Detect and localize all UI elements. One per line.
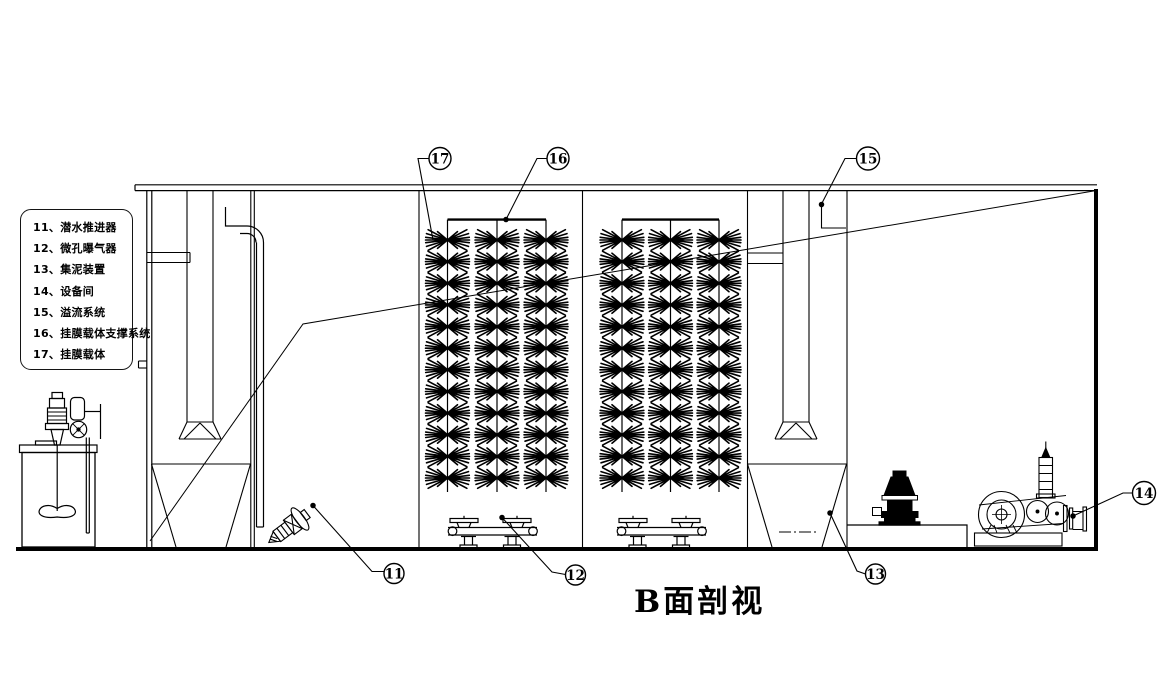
left-wall (147, 191, 152, 549)
callout-number: 17 (431, 151, 450, 167)
callout-number: 15 (859, 151, 878, 167)
dosing-drop-pipe (226, 207, 264, 527)
dosing-tank-mixer (20, 393, 101, 548)
roots-blower (975, 442, 1087, 547)
legend-item: 17、挂膜载体 (33, 344, 132, 365)
callout-13: 13 (866, 564, 886, 584)
callout-12: 12 (566, 565, 586, 585)
view-title: B面剖视 (634, 576, 765, 621)
equipment-plinth (847, 525, 967, 549)
legend-item: 16、挂膜载体支撑系统 (33, 323, 132, 344)
legend-item: 12、微孔曝气器 (33, 238, 132, 259)
drawing-sheet: 17 16 15 11 12 13 14 11、潜水推进器 12、微孔曝气器 1… (0, 0, 1175, 699)
callout-number: 12 (566, 568, 585, 584)
inlet-pipe-right (748, 253, 784, 264)
downcomer-duct-left (179, 191, 221, 439)
legend-item: 11、潜水推进器 (33, 217, 132, 238)
aerator-unit-1 (448, 516, 537, 548)
legend-item: 13、集泥装置 (33, 259, 132, 280)
callout-14: 14 (1133, 482, 1156, 505)
downcomer-duct-right (775, 191, 817, 439)
callout-17: 17 (429, 148, 451, 170)
callout-15: 15 (857, 147, 880, 170)
biofilm-carrier-brushes (426, 230, 742, 489)
sludge-pump (873, 471, 921, 525)
sludge-hopper (748, 464, 847, 547)
aerator-unit-2 (617, 516, 706, 548)
inlet-pipe-left (147, 253, 190, 263)
top-rail (135, 185, 1097, 191)
callout-11: 11 (384, 564, 404, 584)
legend-box: 11、潜水推进器 12、微孔曝气器 13、集泥装置 14、设备间 15、溢流系统… (20, 209, 133, 370)
legend-item: 15、溢流系统 (33, 302, 132, 323)
wall-stub-pipe (139, 361, 147, 368)
callout-number: 16 (549, 151, 568, 167)
legend-item: 14、设备间 (33, 281, 132, 302)
drawing-canvas: 17 16 15 11 12 13 14 (0, 0, 1175, 699)
callout-number: 13 (866, 567, 885, 583)
callout-number: 14 (1135, 486, 1154, 502)
callout-number: 11 (385, 566, 404, 582)
hopper-left (152, 464, 251, 547)
submersible-propeller (261, 503, 316, 553)
callout-16: 16 (547, 148, 569, 170)
